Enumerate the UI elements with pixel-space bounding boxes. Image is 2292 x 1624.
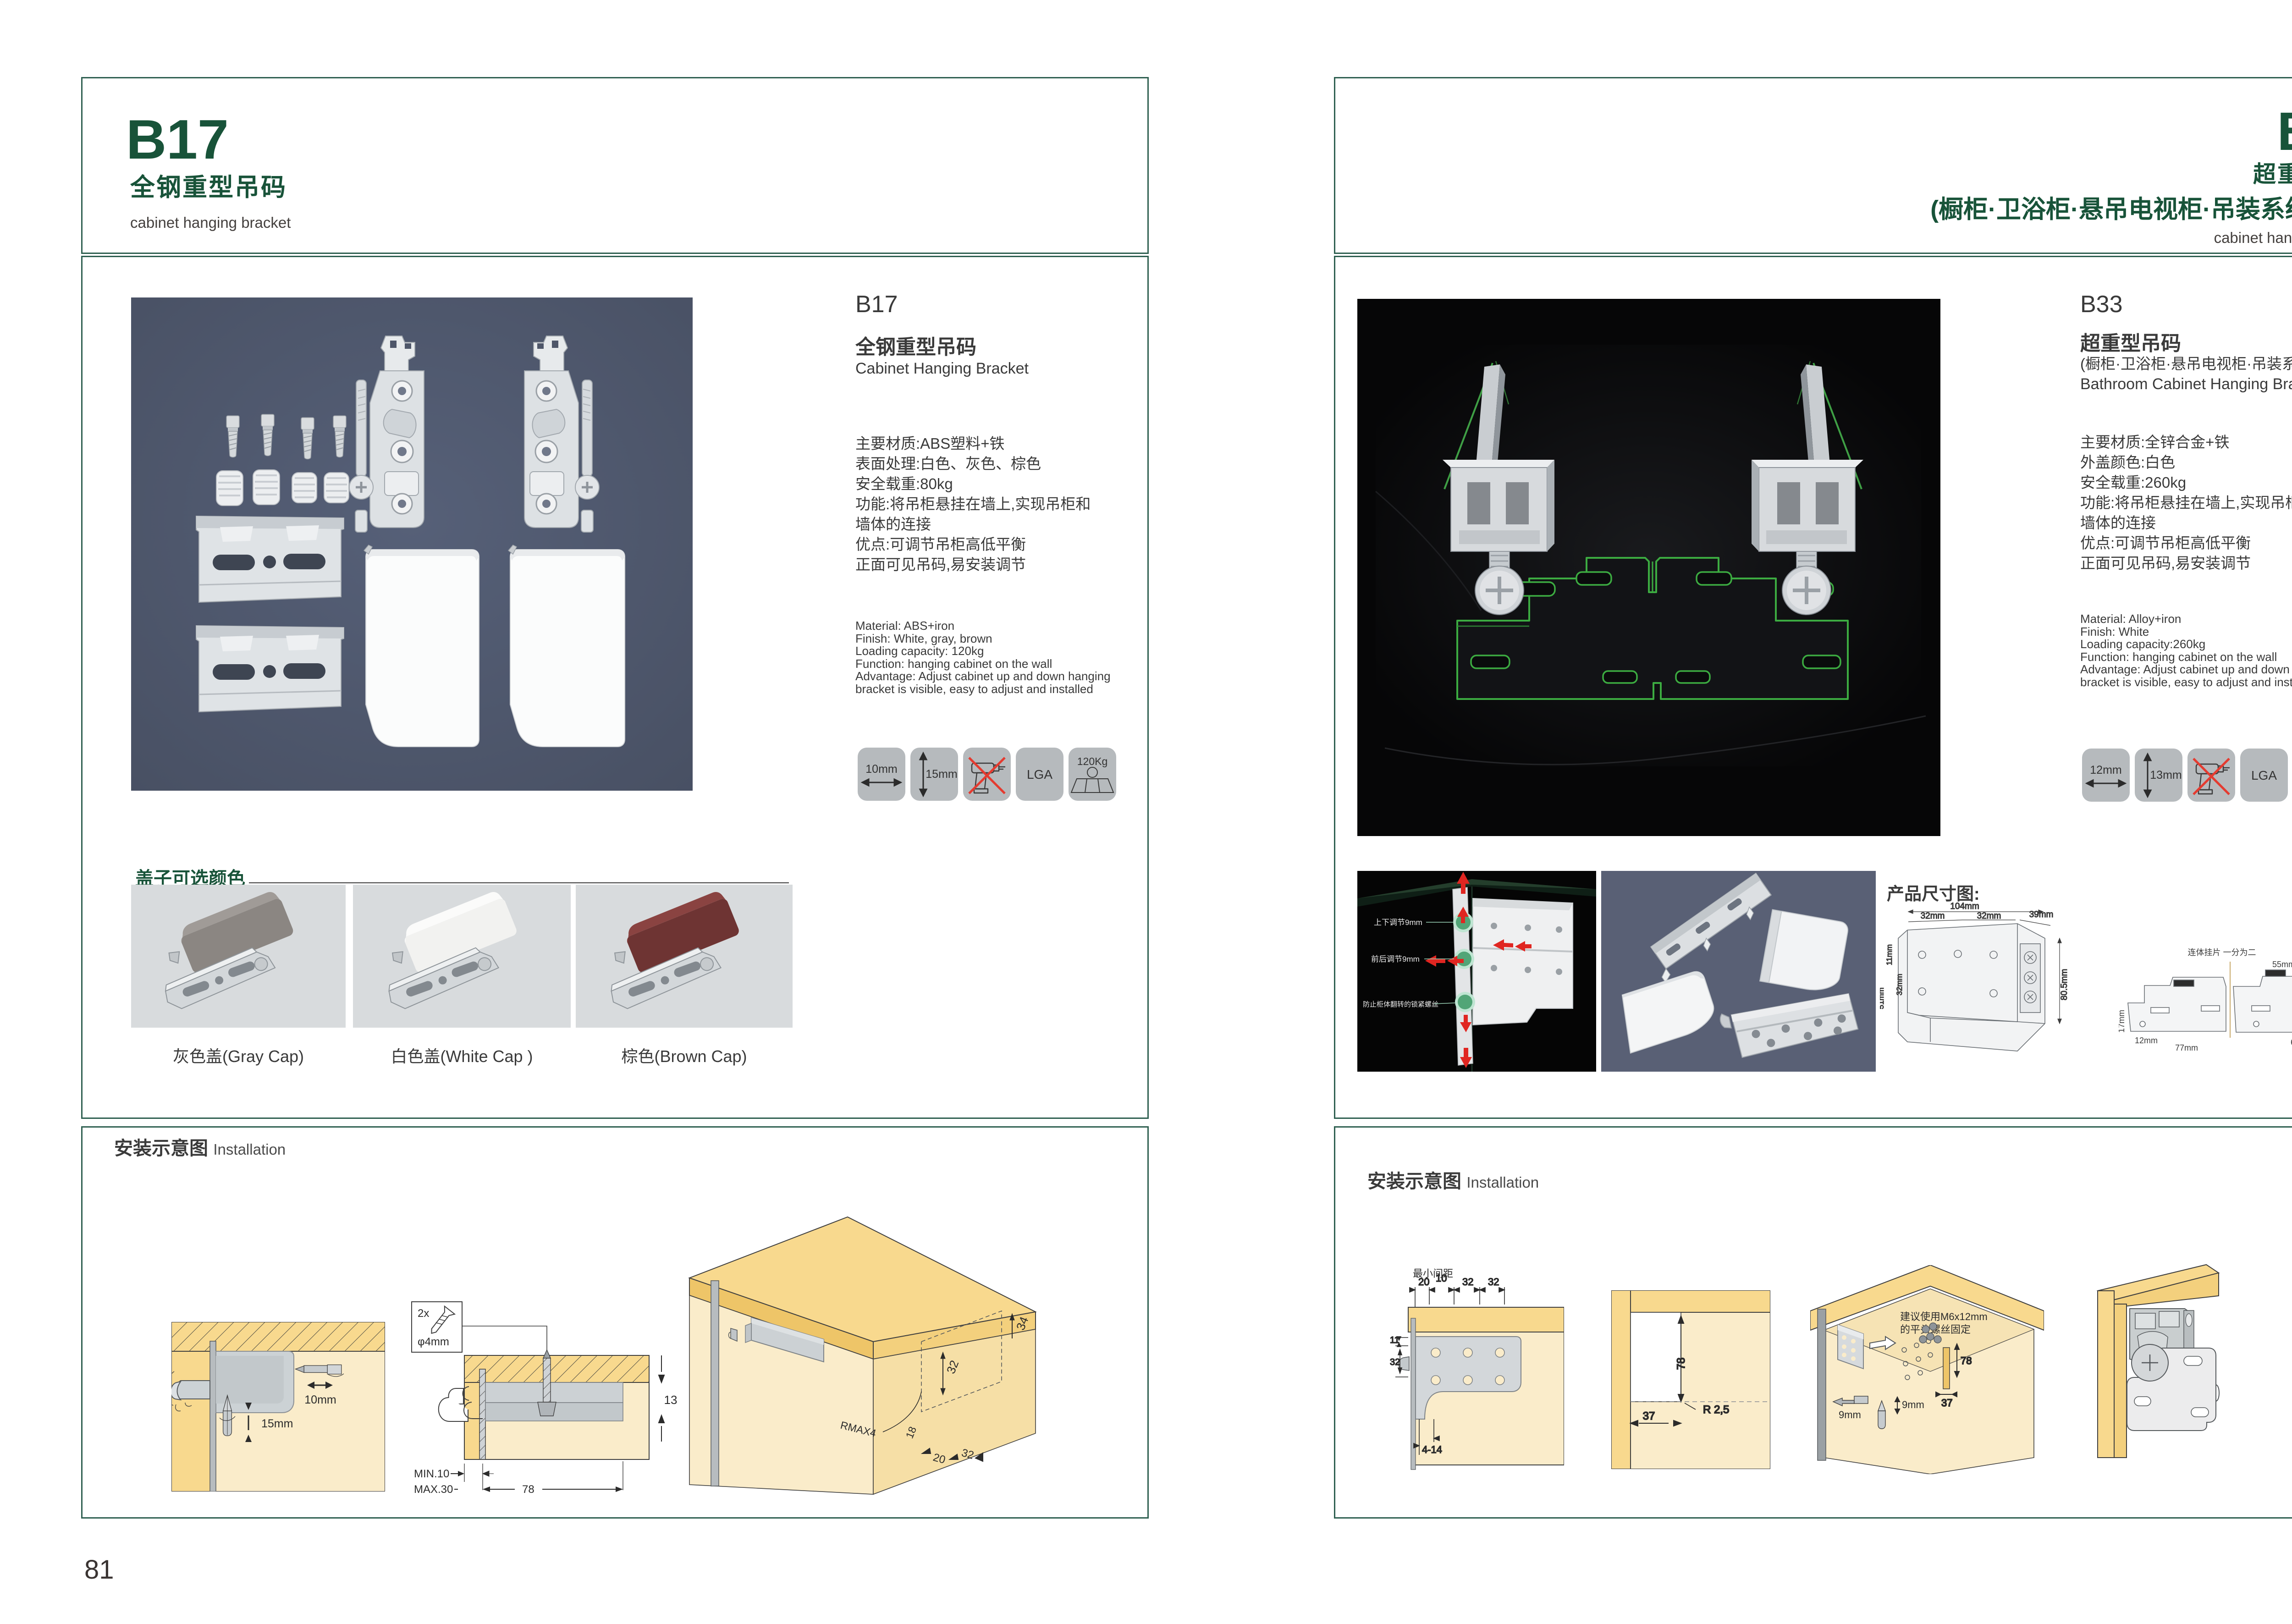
- svg-text:32mm: 32mm: [1895, 974, 1904, 995]
- svg-text:9mm: 9mm: [1902, 1399, 1924, 1410]
- svg-text:120Kg: 120Kg: [1077, 755, 1108, 767]
- svg-text:32: 32: [1488, 1276, 1499, 1288]
- svg-text:51mm: 51mm: [1880, 987, 1885, 1009]
- svg-text:15mm: 15mm: [261, 1417, 293, 1430]
- svg-text:13: 13: [664, 1393, 678, 1407]
- svg-text:MIN.10: MIN.10: [414, 1468, 449, 1480]
- svg-text:R 2,5: R 2,5: [1703, 1404, 1729, 1416]
- svg-text:10mm: 10mm: [865, 763, 897, 776]
- svg-text:2x: 2x: [418, 1307, 429, 1320]
- svg-text:9mm: 9mm: [1839, 1409, 1861, 1420]
- svg-text:LGA: LGA: [1027, 767, 1052, 782]
- svg-text:32: 32: [1390, 1357, 1400, 1367]
- svg-text:13mm: 13mm: [2150, 769, 2182, 782]
- svg-text:上下调节9mm: 上下调节9mm: [1374, 918, 1422, 927]
- svg-text:防止柜体翻转的锁紧螺丝: 防止柜体翻转的锁紧螺丝: [1363, 1001, 1438, 1008]
- svg-text:37: 37: [1941, 1397, 1952, 1409]
- svg-text:32: 32: [1462, 1276, 1473, 1288]
- svg-text:80.5mm: 80.5mm: [2060, 969, 2069, 1001]
- svg-text:37: 37: [1643, 1410, 1655, 1422]
- svg-text:39mm: 39mm: [2029, 910, 2054, 919]
- svg-text:78: 78: [522, 1483, 534, 1496]
- svg-text:78: 78: [1675, 1358, 1687, 1370]
- svg-text:77mm: 77mm: [2175, 1043, 2198, 1052]
- svg-text:LGA: LGA: [2251, 768, 2277, 782]
- svg-text:连体挂片 一分为二: 连体挂片 一分为二: [2187, 948, 2256, 957]
- svg-text:20: 20: [1418, 1276, 1429, 1288]
- svg-text:φ4mm: φ4mm: [418, 1336, 449, 1348]
- svg-text:17mm: 17mm: [2119, 1010, 2126, 1033]
- svg-text:MAX.30: MAX.30: [414, 1483, 453, 1496]
- svg-text:10mm: 10mm: [304, 1393, 336, 1406]
- svg-text:15mm: 15mm: [926, 768, 957, 781]
- svg-text:78: 78: [1961, 1355, 1972, 1366]
- svg-text:32mm: 32mm: [1977, 911, 2001, 921]
- svg-text:104mm: 104mm: [1950, 902, 1979, 911]
- svg-text:10: 10: [1436, 1272, 1447, 1284]
- svg-text:4-14: 4-14: [1422, 1444, 1442, 1455]
- svg-text:12mm: 12mm: [2090, 764, 2121, 776]
- svg-text:32mm: 32mm: [1921, 911, 1945, 921]
- svg-text:建议使用M6x12mm: 建议使用M6x12mm: [1900, 1311, 1988, 1322]
- svg-text:前后调节9mm: 前后调节9mm: [1371, 955, 1420, 963]
- svg-text:55mm: 55mm: [2272, 960, 2292, 969]
- svg-text:11mm: 11mm: [1885, 944, 1894, 965]
- svg-text:12mm: 12mm: [2135, 1036, 2158, 1045]
